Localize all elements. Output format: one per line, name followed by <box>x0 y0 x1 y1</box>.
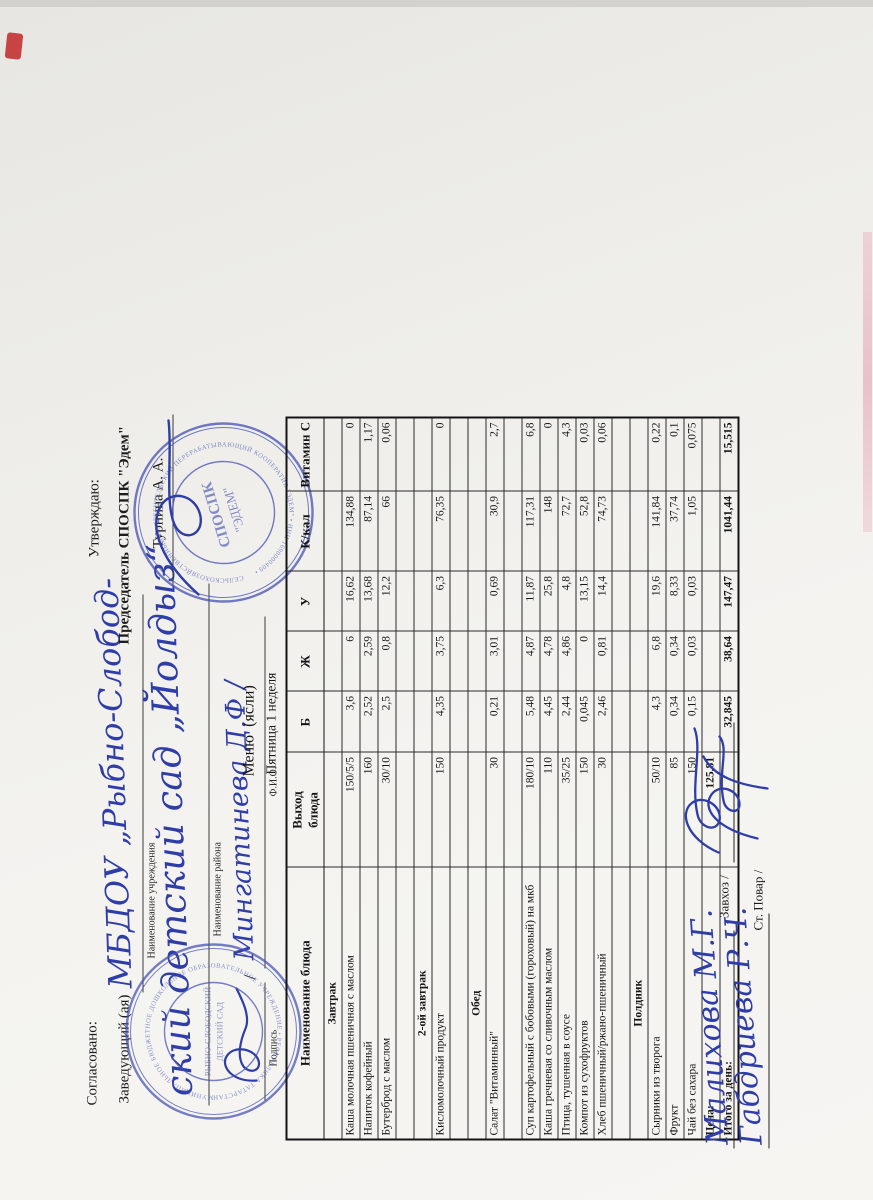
value-cell: 38,64 <box>720 631 739 691</box>
value-cell: 1,17 <box>360 417 378 491</box>
value-cell <box>450 417 468 491</box>
value-cell: 19,6 <box>648 571 666 631</box>
value-cell <box>324 691 342 752</box>
value-cell: 6 <box>342 631 360 691</box>
chairman-signature-squiggle <box>138 412 218 602</box>
value-cell: 4,3 <box>648 691 666 752</box>
menu-section-row: Полдник <box>630 417 648 1139</box>
col-portion: Выход блюда <box>286 752 324 867</box>
menu-table: Наименование блюда Выход блюда Б Ж У К/к… <box>285 416 739 1140</box>
value-cell: 4,45 <box>540 691 558 752</box>
menu-dish-row: Птица, тушенная в соусе35/252,444,864,87… <box>558 417 576 1139</box>
value-cell: 76,35 <box>432 491 450 571</box>
scan-artifact-red-mark <box>5 32 24 60</box>
value-cell: 2,59 <box>360 631 378 691</box>
menu-empty-row <box>450 417 468 1139</box>
value-cell <box>630 571 648 631</box>
value-cell: 0,22 <box>648 417 666 491</box>
value-cell: 15,515 <box>720 417 739 491</box>
value-cell <box>630 417 648 491</box>
value-cell <box>702 631 720 691</box>
value-cell: 0,81 <box>594 631 612 691</box>
value-cell: 4,35 <box>432 691 450 752</box>
value-cell <box>504 752 522 867</box>
value-cell <box>396 752 414 867</box>
menu-table-header: Наименование блюда Выход блюда Б Ж У К/к… <box>286 417 324 1139</box>
value-cell: 12,2 <box>378 571 396 631</box>
caption-district: Наименование района <box>212 842 223 936</box>
value-cell: 87,14 <box>360 491 378 571</box>
value-cell: 4,8 <box>558 571 576 631</box>
value-cell <box>324 417 342 491</box>
value-cell <box>468 417 486 491</box>
value-cell <box>396 691 414 752</box>
value-cell <box>414 491 432 571</box>
value-cell: 1041,44 <box>720 491 739 571</box>
value-cell: 0,06 <box>378 417 396 491</box>
value-cell: 150/5/5 <box>342 752 360 867</box>
value-cell: 0,075 <box>684 417 702 491</box>
value-cell: 160 <box>360 752 378 867</box>
value-cell: 16,62 <box>342 571 360 631</box>
value-cell: 0 <box>540 417 558 491</box>
value-cell <box>414 631 432 691</box>
col-kcal: К/кал <box>286 491 324 571</box>
dish-name-cell <box>396 867 414 1139</box>
value-cell <box>468 691 486 752</box>
value-cell: 4,3 <box>558 417 576 491</box>
value-cell: 30 <box>594 752 612 867</box>
menu-subtitle: Пятница 1 неделя <box>263 672 279 774</box>
value-cell: 6,8 <box>522 417 540 491</box>
value-cell <box>612 752 630 867</box>
menu-dish-row: Напиток кофейный1602,522,5913,6887,141,1… <box>360 417 378 1139</box>
value-cell: 2,46 <box>594 691 612 752</box>
menu-dish-row: Компот из сухофруктов1500,045013,1552,80… <box>576 417 594 1139</box>
scanned-menu-page: Согласовано: Заведующий (ая) МБДОУ „Рыбн… <box>0 0 873 1200</box>
value-cell: 3,75 <box>432 631 450 691</box>
value-cell <box>504 491 522 571</box>
value-cell: 2,7 <box>486 417 504 491</box>
value-cell <box>504 631 522 691</box>
menu-dish-row: Салат "Витаминный"300,213,010,6930,92,7 <box>486 417 504 1139</box>
dish-name-cell: Фрукт <box>666 867 684 1139</box>
value-cell <box>450 571 468 631</box>
value-cell <box>504 417 522 491</box>
underline-fio <box>264 616 265 968</box>
value-cell: 110 <box>540 752 558 867</box>
value-cell: 2,5 <box>378 691 396 752</box>
value-cell: 37,74 <box>666 491 684 571</box>
value-cell <box>612 571 630 631</box>
menu-title: Меню (ясли) <box>240 685 258 776</box>
value-cell: 150 <box>576 752 594 867</box>
value-cell: 2,44 <box>558 691 576 752</box>
value-cell: 0,03 <box>684 631 702 691</box>
value-cell: 147,47 <box>720 571 739 631</box>
value-cell: 2,52 <box>360 691 378 752</box>
menu-dish-row: Суп картофельный с бобовыми (гороховый) … <box>522 417 540 1139</box>
value-cell <box>468 752 486 867</box>
value-cell <box>396 417 414 491</box>
menu-section-row: Обед <box>468 417 486 1139</box>
menu-dish-row: Сырники из творога50/104,36,819,6141,840… <box>648 417 666 1139</box>
stamp-center-text-2: ДЕТСКИЙ САД <box>214 1001 224 1060</box>
value-cell: 0 <box>432 417 450 491</box>
value-cell <box>630 691 648 752</box>
value-cell <box>414 417 432 491</box>
value-cell: 6,3 <box>432 571 450 631</box>
value-cell: 13,68 <box>360 571 378 631</box>
value-cell <box>630 752 648 867</box>
value-cell: 11,87 <box>522 571 540 631</box>
value-cell: 14,4 <box>594 571 612 631</box>
value-cell: 150 <box>432 752 450 867</box>
approved-label: Утверждаю: <box>86 479 103 557</box>
value-cell: 180/10 <box>522 752 540 867</box>
institution-round-stamp: МУНИЦИПАЛЬНОЕ БЮДЖЕТНОЕ ДОШКОЛЬНОЕ ОБРАЗ… <box>122 940 304 1122</box>
dish-name-cell: Салат "Витаминный" <box>486 867 504 1139</box>
value-cell: 0 <box>576 631 594 691</box>
header-row: Наименование блюда Выход блюда Б Ж У К/к… <box>286 417 324 1139</box>
value-cell <box>396 491 414 571</box>
value-cell: 0 <box>342 417 360 491</box>
scan-artifact-pink-streak <box>863 232 872 532</box>
col-dish-name: Наименование блюда <box>286 867 324 1139</box>
value-cell <box>504 691 522 752</box>
cook-signature-squiggle <box>695 728 770 848</box>
value-cell <box>468 491 486 571</box>
value-cell <box>504 571 522 631</box>
dish-name-cell: Обед <box>468 867 486 1139</box>
value-cell: 8,33 <box>666 571 684 631</box>
value-cell <box>630 631 648 691</box>
value-cell: 141,84 <box>648 491 666 571</box>
stamp-center-text-1: РЫБНО-СЛОБОДСКИЙ <box>202 986 212 1075</box>
value-cell: 1,05 <box>684 491 702 571</box>
value-cell: 0,1 <box>666 417 684 491</box>
value-cell: 30 <box>486 752 504 867</box>
value-cell <box>702 491 720 571</box>
value-cell: 117,31 <box>522 491 540 571</box>
value-cell <box>324 571 342 631</box>
value-cell: 30,9 <box>486 491 504 571</box>
value-cell: 134,88 <box>342 491 360 571</box>
value-cell: 0,03 <box>684 571 702 631</box>
underline-cook <box>768 913 769 1148</box>
dish-name-cell: Полдник <box>630 867 648 1139</box>
value-cell: 25,8 <box>540 571 558 631</box>
value-cell <box>702 417 720 491</box>
dish-name-cell: Компот из сухофруктов <box>576 867 594 1139</box>
value-cell: 5,48 <box>522 691 540 752</box>
menu-section-row: 2-ой завтрак <box>414 417 432 1139</box>
col-vitamin-c: Витамин С <box>286 417 324 491</box>
value-cell: 148 <box>540 491 558 571</box>
value-cell <box>702 571 720 631</box>
value-cell <box>324 752 342 867</box>
value-cell: 13,15 <box>576 571 594 631</box>
value-cell <box>414 691 432 752</box>
value-cell <box>450 631 468 691</box>
value-cell <box>468 571 486 631</box>
value-cell: 0,8 <box>378 631 396 691</box>
dish-name-cell: Каша молочная пшеничная с маслом <box>342 867 360 1139</box>
dish-name-cell: Каша гречневая со сливочным маслом <box>540 867 558 1139</box>
dish-name-cell: 2-ой завтрак <box>414 867 432 1139</box>
col-fat: Ж <box>286 631 324 691</box>
menu-dish-row: Каша гречневая со сливочным маслом1104,4… <box>540 417 558 1139</box>
value-cell <box>450 491 468 571</box>
value-cell <box>414 571 432 631</box>
value-cell <box>450 752 468 867</box>
menu-dish-row: Кисломолочный продукт1504,353,756,376,35… <box>432 417 450 1139</box>
menu-empty-row <box>504 417 522 1139</box>
value-cell: 4,78 <box>540 631 558 691</box>
value-cell <box>612 417 630 491</box>
dish-name-cell: Хлеб пшеничный/ржано-пшеничный <box>594 867 612 1139</box>
value-cell <box>396 571 414 631</box>
value-cell <box>612 491 630 571</box>
dish-name-cell: Сырники из творога <box>648 867 666 1139</box>
value-cell <box>468 631 486 691</box>
value-cell <box>396 631 414 691</box>
value-cell: 35/25 <box>558 752 576 867</box>
dish-name-cell <box>450 867 468 1139</box>
menu-dish-row: Бутерброд с маслом30/102,50,812,2660,06 <box>378 417 396 1139</box>
dish-name-cell: Птица, тушенная в соусе <box>558 867 576 1139</box>
dish-name-cell: Завтрак <box>324 867 342 1139</box>
menu-dish-row: Каша молочная пшеничная с маслом150/5/53… <box>342 417 360 1139</box>
value-cell: 0,21 <box>486 691 504 752</box>
document-content: Согласовано: Заведующий (ая) МБДОУ „Рыбн… <box>0 0 873 1200</box>
value-cell <box>612 631 630 691</box>
value-cell: 72,7 <box>558 491 576 571</box>
value-cell: 4,87 <box>522 631 540 691</box>
value-cell: 6,8 <box>648 631 666 691</box>
menu-section-row: Завтрак <box>324 417 342 1139</box>
value-cell: 66 <box>378 491 396 571</box>
scan-artifact-top-shadow <box>0 0 873 7</box>
value-cell: 0,69 <box>486 571 504 631</box>
col-protein: Б <box>286 691 324 752</box>
value-cell: 50/10 <box>648 752 666 867</box>
value-cell <box>324 491 342 571</box>
cook-role-label: Ст. Повар / <box>750 869 766 930</box>
value-cell: 4,86 <box>558 631 576 691</box>
value-cell: 52,8 <box>576 491 594 571</box>
dish-name-cell: Напиток кофейный <box>360 867 378 1139</box>
value-cell <box>324 631 342 691</box>
dish-name-cell: Суп картофельный с бобовыми (гороховый) … <box>522 867 540 1139</box>
menu-dish-row: Хлеб пшеничный/ржано-пшеничный302,460,81… <box>594 417 612 1139</box>
col-carbs: У <box>286 571 324 631</box>
value-cell: 3,6 <box>342 691 360 752</box>
menu-empty-row <box>396 417 414 1139</box>
value-cell: 30/10 <box>378 752 396 867</box>
dish-name-cell <box>612 867 630 1139</box>
dish-name-cell: Кисломолочный продукт <box>432 867 450 1139</box>
value-cell <box>630 491 648 571</box>
menu-empty-row <box>612 417 630 1139</box>
dish-name-cell: Бутерброд с маслом <box>378 867 396 1139</box>
value-cell <box>414 752 432 867</box>
value-cell: 0,06 <box>594 417 612 491</box>
value-cell: 74,73 <box>594 491 612 571</box>
value-cell: 0,045 <box>576 691 594 752</box>
agreed-label: Согласовано: <box>84 1021 101 1105</box>
value-cell: 0,03 <box>576 417 594 491</box>
value-cell: 0,34 <box>666 631 684 691</box>
value-cell: 3,01 <box>486 631 504 691</box>
value-cell <box>612 691 630 752</box>
value-cell <box>450 691 468 752</box>
dish-name-cell <box>504 867 522 1139</box>
